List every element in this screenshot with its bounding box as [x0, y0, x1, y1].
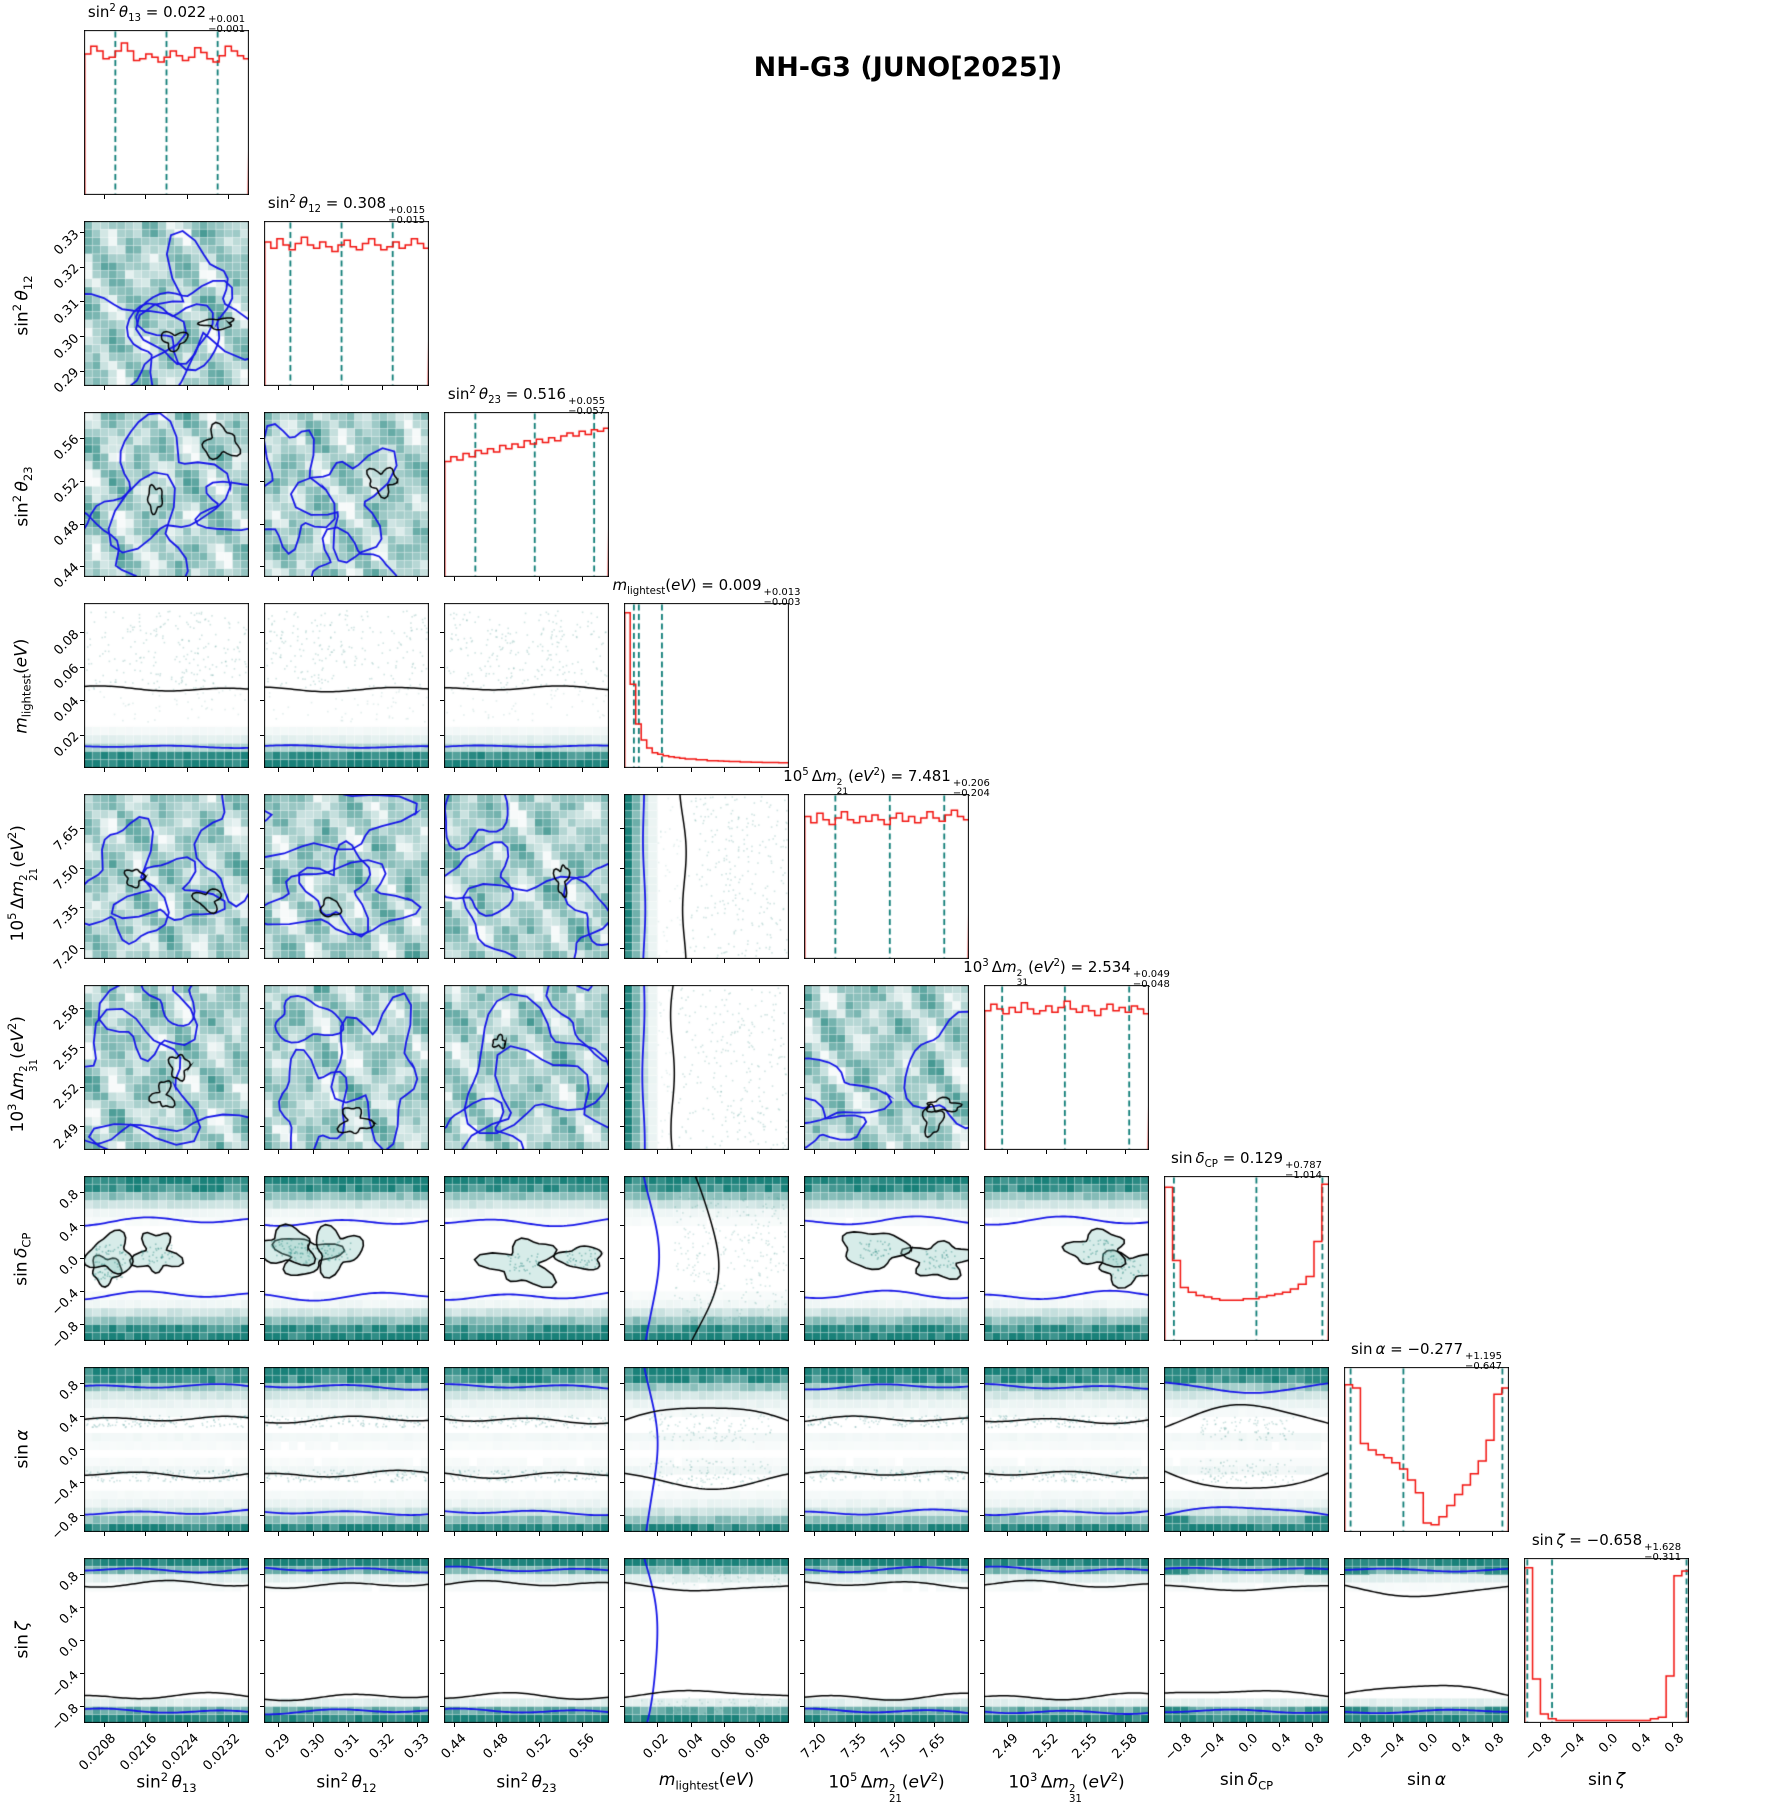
tick-mark [620, 1192, 624, 1193]
tick-mark [80, 1449, 84, 1450]
tick-mark [980, 1574, 984, 1575]
tick-mark [80, 1383, 84, 1384]
tick-mark [1492, 1723, 1493, 1727]
tick-mark [582, 577, 583, 581]
panel-sinzeta-vs-sin2theta12 [264, 1558, 429, 1723]
tick-mark [620, 1673, 624, 1674]
tick-mark [80, 1607, 84, 1608]
tick-mark [620, 1087, 624, 1088]
tick-mark [80, 907, 84, 908]
y-tick-label: 0.31 [51, 296, 82, 327]
hist-mlightest [624, 603, 789, 768]
x-axis-label-mlightest: mlightest(eV) [659, 1770, 754, 1792]
tick-mark [894, 1150, 895, 1154]
tick-mark [440, 1192, 444, 1193]
tick-mark [417, 768, 418, 772]
tick-mark [260, 438, 264, 439]
density-canvas [984, 1176, 1149, 1341]
panel-sinalpha-vs-sin2theta23 [444, 1367, 609, 1532]
tick-mark [980, 1291, 984, 1292]
density-canvas [624, 1367, 789, 1532]
y-tick-label: 0.8 [57, 1187, 82, 1212]
tick-mark [691, 1723, 692, 1727]
x-axis-label-sinalpha: sin α [1407, 1770, 1446, 1790]
tick-mark [1160, 1515, 1164, 1516]
density-canvas [444, 985, 609, 1150]
tick-mark [260, 566, 264, 567]
y-tick-label: 0.33 [51, 227, 82, 258]
tick-mark [620, 868, 624, 869]
tick-mark [417, 386, 418, 390]
histogram-canvas [444, 412, 609, 577]
tick-mark [80, 267, 84, 268]
tick-mark [382, 386, 383, 390]
tick-mark [1213, 1341, 1214, 1345]
tick-mark [1393, 1532, 1394, 1536]
tick-mark [80, 1515, 84, 1516]
density-canvas [264, 1367, 429, 1532]
estimate-title-sin2theta23: sin2 θ23 = 0.516+0.055−0.057 [448, 385, 605, 418]
hist-dm221 [804, 794, 969, 959]
panel-mlightest-vs-sin2theta13 [84, 603, 249, 768]
tick-mark [454, 959, 455, 963]
tick-mark [454, 1341, 455, 1345]
tick-mark [1160, 1673, 1164, 1674]
tick-mark [582, 959, 583, 963]
tick-mark [855, 1532, 856, 1536]
tick-mark [260, 948, 264, 949]
tick-mark [1160, 1706, 1164, 1707]
density-canvas [84, 603, 249, 768]
density-canvas [624, 1558, 789, 1723]
density-canvas [804, 1367, 969, 1532]
tick-mark [187, 577, 188, 581]
tick-mark [260, 1449, 264, 1450]
tick-mark [187, 1150, 188, 1154]
x-tick-label: −0.4 [1375, 1731, 1408, 1764]
tick-mark [278, 768, 279, 772]
tick-mark [440, 1258, 444, 1259]
tick-mark [759, 1532, 760, 1536]
y-tick-label: 0.06 [51, 662, 82, 693]
y-tick-label: 0.8 [57, 1569, 82, 1594]
tick-mark [800, 1607, 804, 1608]
y-axis-label-sindcp: sin δCP [11, 1176, 33, 1341]
tick-mark [620, 1416, 624, 1417]
tick-mark [104, 386, 105, 390]
tick-mark [1672, 1723, 1673, 1727]
tick-mark [417, 1150, 418, 1154]
tick-mark [104, 959, 105, 963]
tick-mark [313, 1341, 314, 1345]
tick-mark [980, 1225, 984, 1226]
x-tick-label: 0.08 [743, 1731, 774, 1762]
tick-mark [1180, 1532, 1181, 1536]
panel-sin2theta12-vs-sin2theta13 [84, 221, 249, 386]
tick-mark [800, 1047, 804, 1048]
y-tick-label: 2.49 [51, 1121, 82, 1152]
tick-mark [228, 1532, 229, 1536]
tick-mark [278, 1341, 279, 1345]
panel-sinzeta-vs-dm231 [984, 1558, 1149, 1723]
y-axis-label-sin2theta12: sin2 θ12 [9, 223, 34, 388]
tick-mark [145, 386, 146, 390]
tick-mark [313, 1150, 314, 1154]
tick-mark [260, 1706, 264, 1707]
tick-mark [1279, 1532, 1280, 1536]
tick-mark [260, 1008, 264, 1009]
panel-sinzeta-vs-mlightest [624, 1558, 789, 1723]
y-tick-label: 0.4 [57, 1411, 82, 1436]
y-tick-label: 0.02 [51, 729, 82, 760]
tick-mark [1213, 1723, 1214, 1727]
tick-mark [1213, 1532, 1214, 1536]
panel-sinalpha-vs-dm221 [804, 1367, 969, 1532]
panel-dm221-vs-sin2theta13 [84, 794, 249, 959]
tick-mark [80, 1324, 84, 1325]
tick-mark [454, 768, 455, 772]
x-tick-label: 0.32 [366, 1731, 397, 1762]
tick-mark [1312, 1532, 1313, 1536]
tick-mark [980, 1706, 984, 1707]
x-tick-label: 0.4 [1449, 1731, 1474, 1756]
y-tick-label: 7.35 [51, 902, 82, 933]
tick-mark [620, 1383, 624, 1384]
tick-mark [440, 1324, 444, 1325]
density-canvas [264, 412, 429, 577]
tick-mark [278, 1532, 279, 1536]
tick-mark [934, 959, 935, 963]
tick-mark [348, 386, 349, 390]
tick-mark [620, 1225, 624, 1226]
tick-mark [382, 1341, 383, 1345]
tick-mark [800, 1225, 804, 1226]
histogram-canvas [804, 794, 969, 959]
tick-mark [104, 768, 105, 772]
tick-mark [1160, 1416, 1164, 1417]
tick-mark [980, 1673, 984, 1674]
tick-mark [620, 1324, 624, 1325]
tick-mark [800, 1574, 804, 1575]
tick-mark [582, 1723, 583, 1727]
tick-mark [1573, 1723, 1574, 1727]
tick-mark [260, 632, 264, 633]
tick-mark [382, 1532, 383, 1536]
tick-mark [440, 1225, 444, 1226]
density-canvas [1164, 1558, 1329, 1723]
tick-mark [582, 768, 583, 772]
tick-mark [814, 1150, 815, 1154]
y-tick-label: 2.58 [51, 1002, 82, 1033]
tick-mark [1160, 1640, 1164, 1641]
hist-sin2theta12 [264, 221, 429, 386]
y-tick-label: −0.8 [49, 1510, 82, 1543]
density-canvas [804, 1176, 969, 1341]
tick-mark [1125, 1532, 1126, 1536]
x-axis-label-sin2theta12: sin2 θ12 [316, 1770, 376, 1795]
tick-mark [228, 577, 229, 581]
density-canvas [444, 603, 609, 768]
tick-mark [657, 1150, 658, 1154]
tick-mark [260, 1126, 264, 1127]
x-tick-label: 0.04 [675, 1731, 706, 1762]
x-tick-label: −0.8 [1162, 1731, 1195, 1764]
histogram-canvas [624, 603, 789, 768]
density-canvas [444, 1176, 609, 1341]
tick-mark [228, 768, 229, 772]
tick-mark [1086, 1341, 1087, 1345]
tick-mark [496, 1532, 497, 1536]
tick-mark [1160, 1607, 1164, 1608]
x-axis-label-dm221: 105 Δm221(eV2) [828, 1770, 944, 1805]
tick-mark [539, 577, 540, 581]
tick-mark [260, 1192, 264, 1193]
tick-mark [800, 1192, 804, 1193]
tick-mark [496, 577, 497, 581]
tick-mark [313, 386, 314, 390]
y-tick-label: 0.32 [51, 261, 82, 292]
y-tick-label: 7.20 [51, 942, 82, 973]
tick-mark [80, 1291, 84, 1292]
panel-sindcp-vs-sin2theta23 [444, 1176, 609, 1341]
tick-mark [800, 1087, 804, 1088]
tick-mark [313, 577, 314, 581]
tick-mark [260, 524, 264, 525]
tick-mark [934, 1532, 935, 1536]
tick-mark [145, 1532, 146, 1536]
density-canvas [624, 985, 789, 1150]
tick-mark [1312, 1341, 1313, 1345]
panel-dm231-vs-sin2theta23 [444, 985, 609, 1150]
tick-mark [1492, 1532, 1493, 1536]
panel-sindcp-vs-sin2theta13 [84, 1176, 249, 1341]
x-tick-label: 0.8 [1662, 1731, 1687, 1756]
tick-mark [1180, 1723, 1181, 1727]
tick-mark [620, 828, 624, 829]
x-tick-label: 2.49 [991, 1731, 1022, 1762]
y-tick-label: 0.08 [51, 627, 82, 658]
x-tick-label: 2.52 [1030, 1731, 1061, 1762]
tick-mark [440, 1126, 444, 1127]
y-tick-label: 0.4 [57, 1602, 82, 1627]
tick-mark [187, 195, 188, 199]
density-canvas [1344, 1558, 1509, 1723]
tick-mark [278, 386, 279, 390]
density-canvas [84, 1367, 249, 1532]
tick-mark [1180, 1341, 1181, 1345]
tick-mark [348, 577, 349, 581]
tick-mark [313, 959, 314, 963]
tick-mark [620, 1706, 624, 1707]
tick-mark [260, 1258, 264, 1259]
tick-mark [80, 1008, 84, 1009]
histogram-canvas [1344, 1367, 1509, 1532]
tick-mark [657, 768, 658, 772]
x-tick-label: 7.65 [918, 1731, 949, 1762]
tick-mark [260, 1515, 264, 1516]
y-tick-label: 0.0 [57, 1444, 82, 1469]
tick-mark [440, 1087, 444, 1088]
y-tick-label: 0.29 [51, 365, 82, 396]
tick-mark [440, 667, 444, 668]
tick-mark [80, 1192, 84, 1193]
tick-mark [1340, 1640, 1344, 1641]
x-tick-label: 0.0208 [76, 1731, 119, 1774]
tick-mark [454, 1723, 455, 1727]
x-tick-label: 2.58 [1109, 1731, 1140, 1762]
tick-mark [260, 667, 264, 668]
x-tick-label: 2.55 [1070, 1731, 1101, 1762]
tick-mark [1540, 1723, 1541, 1727]
tick-mark [348, 1150, 349, 1154]
tick-mark [104, 1723, 105, 1727]
panel-sinalpha-vs-sindcp [1164, 1367, 1329, 1532]
x-tick-label: 0.0232 [200, 1731, 243, 1774]
x-tick-label: 0.56 [566, 1731, 597, 1762]
tick-mark [800, 1008, 804, 1009]
tick-mark [454, 577, 455, 581]
tick-mark [440, 1008, 444, 1009]
x-tick-label: 0.0 [1416, 1731, 1441, 1756]
tick-mark [759, 1341, 760, 1345]
tick-mark [260, 1607, 264, 1608]
tick-mark [1086, 1532, 1087, 1536]
tick-mark [440, 1047, 444, 1048]
tick-mark [145, 577, 146, 581]
density-canvas [804, 985, 969, 1150]
y-tick-label: −0.8 [49, 1319, 82, 1352]
tick-mark [814, 1532, 815, 1536]
tick-mark [260, 1047, 264, 1048]
tick-mark [417, 1723, 418, 1727]
tick-mark [104, 1150, 105, 1154]
tick-mark [104, 1341, 105, 1345]
y-tick-label: 0.4 [57, 1220, 82, 1245]
density-canvas [804, 1558, 969, 1723]
y-tick-label: −0.4 [49, 1477, 82, 1510]
tick-mark [980, 1607, 984, 1608]
y-axis-label-sin2theta23: sin2 θ23 [9, 414, 34, 579]
density-canvas [624, 1176, 789, 1341]
density-canvas [264, 985, 429, 1150]
tick-mark [80, 438, 84, 439]
tick-mark [539, 1150, 540, 1154]
density-canvas [444, 794, 609, 959]
tick-mark [1360, 1723, 1361, 1727]
tick-mark [145, 768, 146, 772]
tick-mark [724, 768, 725, 772]
y-axis-label-dm221: 105 Δm221(eV2) [5, 800, 40, 965]
tick-mark [759, 1723, 760, 1727]
tick-mark [800, 1416, 804, 1417]
tick-mark [440, 1574, 444, 1575]
tick-mark [620, 1258, 624, 1259]
tick-mark [1086, 1723, 1087, 1727]
tick-mark [1639, 1723, 1640, 1727]
y-axis-label-mlightest: mlightest(eV) [11, 603, 33, 768]
tick-mark [934, 1150, 935, 1154]
tick-mark [539, 1723, 540, 1727]
tick-mark [1160, 1574, 1164, 1575]
tick-mark [620, 1640, 624, 1641]
tick-mark [1046, 1532, 1047, 1536]
x-axis-label-sinzeta: sin ζ [1588, 1770, 1625, 1790]
tick-mark [145, 195, 146, 199]
tick-mark [814, 959, 815, 963]
density-canvas [444, 1558, 609, 1723]
y-tick-label: 0.30 [51, 331, 82, 362]
tick-mark [657, 1532, 658, 1536]
tick-mark [80, 700, 84, 701]
tick-mark [620, 1607, 624, 1608]
tick-mark [382, 1723, 383, 1727]
tick-mark [260, 735, 264, 736]
tick-mark [278, 1723, 279, 1727]
tick-mark [691, 1150, 692, 1154]
tick-mark [980, 1258, 984, 1259]
tick-mark [855, 1150, 856, 1154]
x-tick-label: 0.06 [708, 1731, 739, 1762]
tick-mark [620, 1047, 624, 1048]
tick-mark [1426, 1723, 1427, 1727]
tick-mark [800, 1324, 804, 1325]
y-tick-label: 0.04 [51, 695, 82, 726]
tick-mark [814, 1341, 815, 1345]
tick-mark [80, 1640, 84, 1641]
tick-mark [980, 1324, 984, 1325]
tick-mark [440, 868, 444, 869]
tick-mark [894, 1723, 895, 1727]
tick-mark [382, 1150, 383, 1154]
x-tick-label: 0.29 [262, 1731, 293, 1762]
tick-mark [278, 959, 279, 963]
tick-mark [1340, 1706, 1344, 1707]
estimate-title-sin2theta12: sin2 θ12 = 0.308+0.015−0.015 [268, 194, 425, 227]
tick-mark [539, 959, 540, 963]
estimate-title-dm221: 105 Δm221(eV2) = 7.481+0.206−0.204 [783, 767, 990, 800]
panel-sinzeta-vs-sindcp [1164, 1558, 1329, 1723]
tick-mark [348, 1723, 349, 1727]
panel-sinzeta-vs-sinalpha [1344, 1558, 1509, 1723]
hist-sin2theta13 [84, 30, 249, 195]
x-tick-label: −0.8 [1522, 1731, 1555, 1764]
tick-mark [260, 700, 264, 701]
tick-mark [313, 1532, 314, 1536]
tick-mark [278, 577, 279, 581]
tick-mark [980, 1416, 984, 1417]
tick-mark [348, 959, 349, 963]
tick-mark [260, 828, 264, 829]
tick-mark [1279, 1723, 1280, 1727]
tick-mark [313, 768, 314, 772]
tick-mark [80, 948, 84, 949]
tick-mark [187, 1341, 188, 1345]
tick-mark [80, 1047, 84, 1048]
tick-mark [440, 948, 444, 949]
tick-mark [104, 195, 105, 199]
tick-mark [260, 868, 264, 869]
tick-mark [894, 1341, 895, 1345]
figure-title: NH-G3 (JUNO[2025]) [754, 52, 1063, 83]
tick-mark [80, 735, 84, 736]
tick-mark [539, 1341, 540, 1345]
tick-mark [278, 1150, 279, 1154]
tick-mark [80, 1126, 84, 1127]
tick-mark [228, 959, 229, 963]
tick-mark [980, 1515, 984, 1516]
tick-mark [228, 1723, 229, 1727]
density-canvas [1164, 1367, 1329, 1532]
